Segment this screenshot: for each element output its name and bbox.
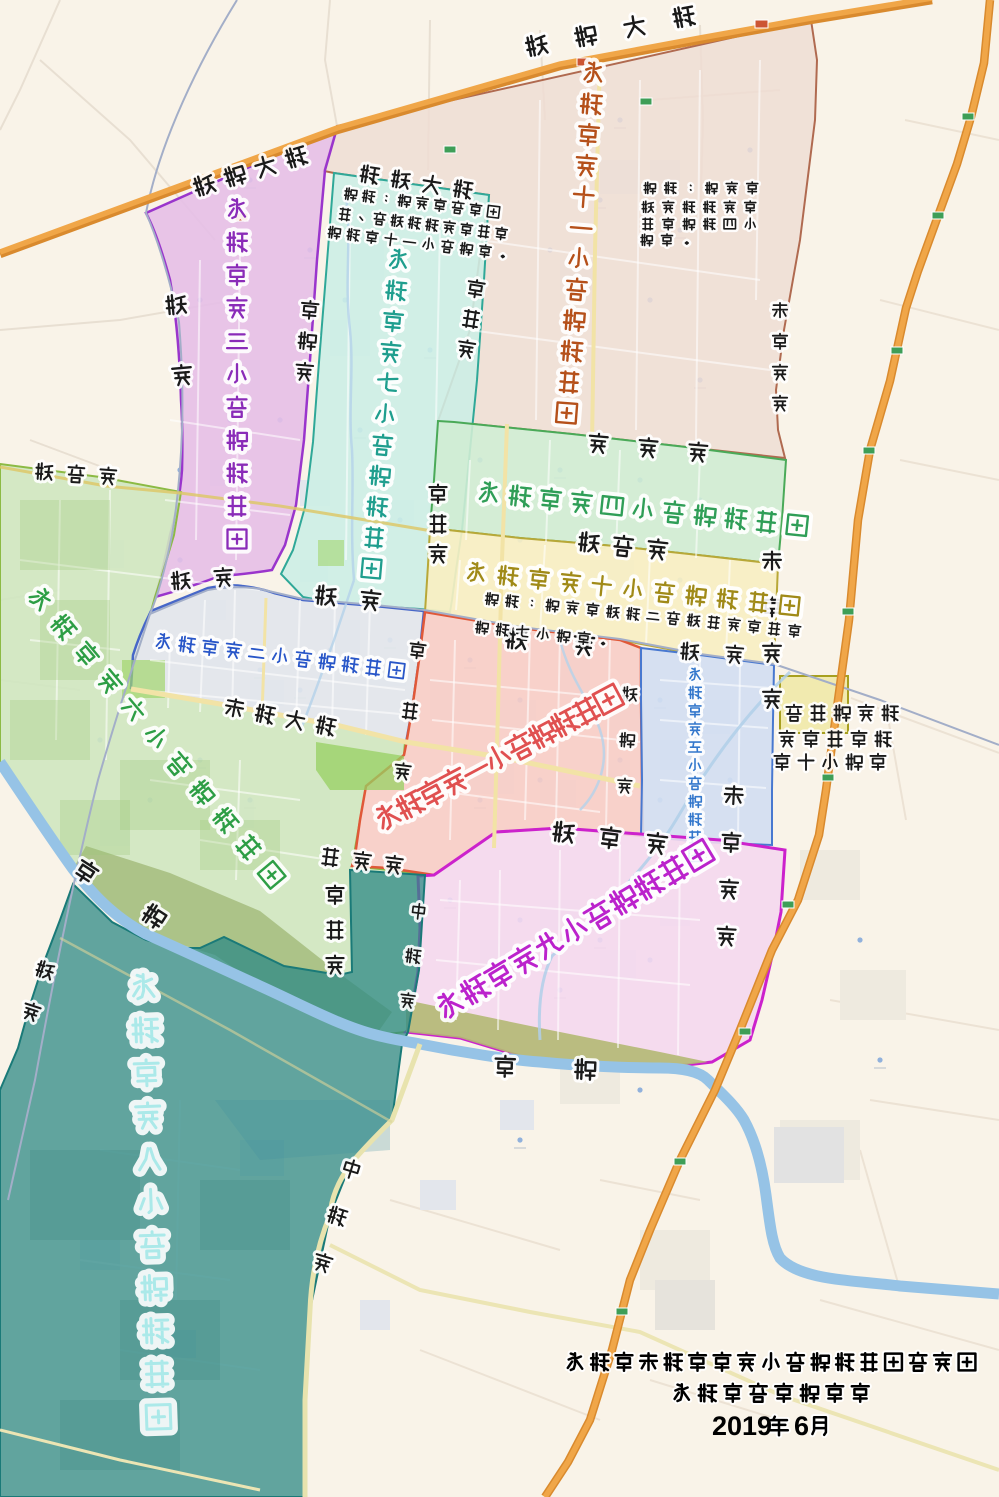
svg-text:2019: 2019	[712, 1411, 772, 1441]
svg-text:6: 6	[794, 1411, 809, 1441]
